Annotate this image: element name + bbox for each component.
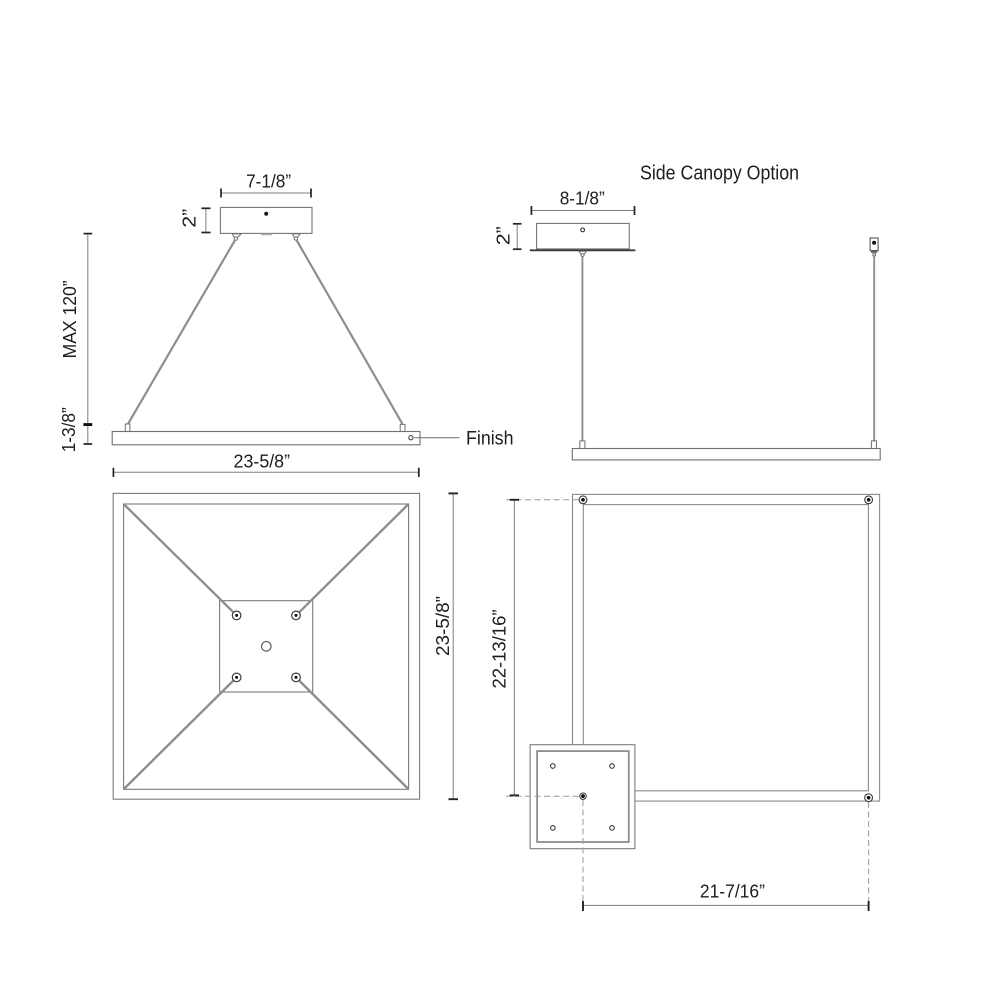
svg-text:23-5/8”: 23-5/8”: [432, 596, 453, 656]
svg-text:2”: 2”: [493, 226, 514, 245]
svg-text:1-3/8”: 1-3/8”: [58, 407, 79, 452]
svg-text:2”: 2”: [178, 209, 199, 228]
svg-text:Finish: Finish: [466, 427, 514, 449]
svg-text:8-1/8”: 8-1/8”: [560, 187, 605, 208]
svg-text:22-13/16”: 22-13/16”: [488, 610, 509, 689]
svg-text:7-1/8”: 7-1/8”: [246, 170, 291, 191]
svg-text:MAX 120”: MAX 120”: [59, 280, 80, 358]
svg-text:21-7/16”: 21-7/16”: [700, 880, 765, 901]
svg-text:23-5/8”: 23-5/8”: [234, 450, 291, 471]
svg-text:Side Canopy Option: Side Canopy Option: [640, 162, 799, 185]
